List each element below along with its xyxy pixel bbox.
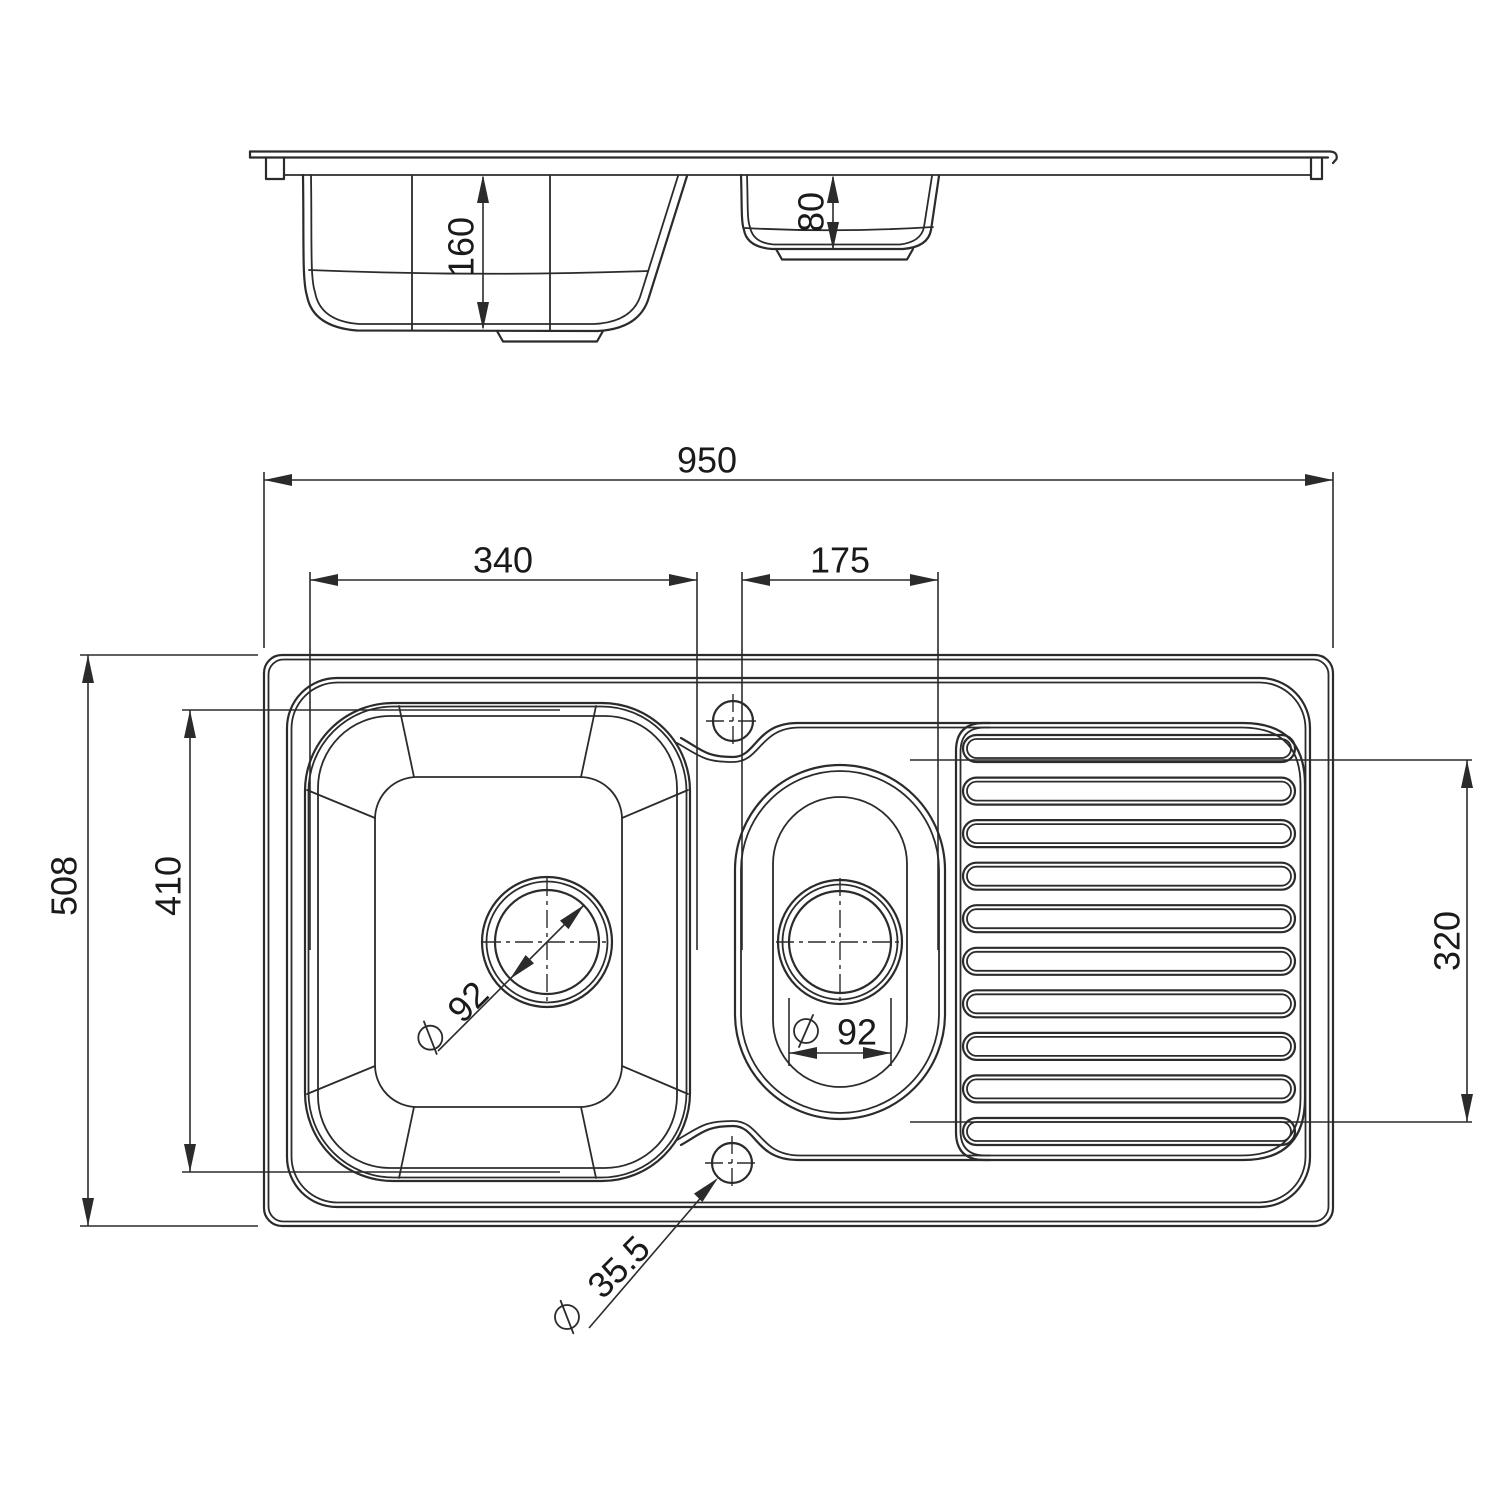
half-bowl-drain-bump <box>776 249 913 260</box>
arrow-ne-icon <box>694 1178 718 1202</box>
arrow-left-icon <box>264 474 292 486</box>
main-bowl-outer-wall <box>303 175 687 331</box>
drainer-rib <box>963 990 1295 1017</box>
drainer-rib <box>963 948 1295 975</box>
dimension-main-bowl-depth: 160 <box>441 175 490 330</box>
drainer-rib <box>963 1033 1295 1060</box>
dimension-half-bowl-depth: 80 <box>791 175 840 250</box>
arrow-up-icon <box>82 655 94 683</box>
main-bowl-width-label: 340 <box>473 540 533 581</box>
half-bowl-outer-wall <box>741 175 939 249</box>
arrow-right-icon <box>1305 474 1333 486</box>
arrow-left-icon <box>310 574 338 586</box>
arrow-left-icon <box>742 574 770 586</box>
half-bowl-contour-line <box>745 227 933 230</box>
dimension-drainer-width: 320 <box>910 760 1473 1122</box>
arrow-up-icon <box>1461 760 1473 788</box>
main-drain-diameter-label: 92 <box>439 973 496 1030</box>
dimension-main-bowl-width: 340 <box>310 540 697 951</box>
drainer-recess-edge-inner <box>961 728 1301 1156</box>
main-bowl-depth-label: 160 <box>441 217 482 277</box>
main-bowl-inner-wall <box>311 175 678 324</box>
sink-outer-edge-inner <box>269 660 1329 1222</box>
half-bowl-depth-label: 80 <box>791 192 832 232</box>
arrow-down-icon <box>1461 1094 1473 1122</box>
right-tab <box>1311 158 1322 180</box>
dimension-overall-length: 950 <box>264 440 1333 649</box>
sink-technical-drawing-page: 160 80 <box>0 0 1500 1500</box>
main-bowl-length-label: 410 <box>148 856 189 916</box>
drainer-rib <box>963 905 1295 932</box>
plan-view: 92 92 <box>44 440 1474 1341</box>
arrow-left-icon <box>789 1047 817 1059</box>
dimension-half-drain: 92 <box>789 998 891 1066</box>
drainer-rib <box>963 820 1295 847</box>
main-bowl-drain-bump <box>497 331 603 342</box>
half-bowl-inner-wall <box>747 175 932 245</box>
half-drain-diameter-label: 92 <box>837 1012 877 1053</box>
arrow-down-icon <box>477 302 489 330</box>
arrow-down-icon <box>82 1198 94 1226</box>
drainer-rib <box>963 863 1295 890</box>
drainer-ribs <box>963 735 1295 1145</box>
overall-length-label: 950 <box>677 440 737 481</box>
dimension-overall-depth: 508 <box>44 655 259 1226</box>
overall-depth-label: 508 <box>44 856 85 916</box>
tap-hole-top <box>706 694 760 748</box>
arrow-up-icon <box>477 175 489 203</box>
dimension-main-bowl-length: 410 <box>148 710 561 1172</box>
arrow-right-icon <box>910 574 938 586</box>
arrow-right-icon <box>669 574 697 586</box>
arrow-down-icon <box>184 1144 196 1172</box>
half-bowl-width-label: 175 <box>810 540 870 581</box>
side-elevation-view: 160 80 <box>250 152 1337 342</box>
arrow-up-icon <box>184 710 196 738</box>
tap-hole-diameter-label: 35.5 <box>579 1228 658 1307</box>
drainer-width-label: 320 <box>1427 911 1468 971</box>
drainer-rib <box>963 1075 1295 1102</box>
left-lip <box>266 158 284 180</box>
drainer-rib <box>963 778 1295 805</box>
drainer-recess-edge <box>956 723 1305 1160</box>
drainer-rib <box>963 735 1295 762</box>
sink-technical-drawing: 160 80 <box>0 0 1500 1500</box>
